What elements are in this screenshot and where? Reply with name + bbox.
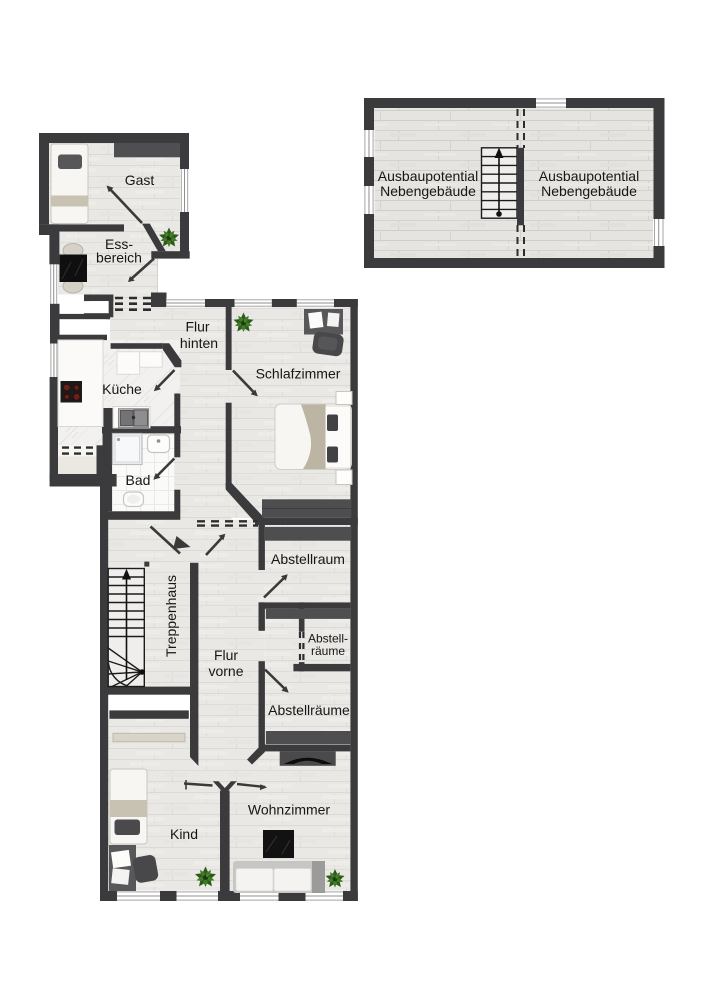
- svg-text:Flur: Flur: [214, 647, 238, 663]
- svg-text:Wohnzimmer: Wohnzimmer: [248, 802, 331, 818]
- svg-text:Treppenhaus: Treppenhaus: [163, 575, 179, 657]
- svg-text:räume: räume: [311, 644, 345, 658]
- svg-text:Küche: Küche: [102, 381, 142, 397]
- svg-text:Kind: Kind: [170, 826, 198, 842]
- svg-text:bereich: bereich: [96, 250, 142, 266]
- svg-text:Ausbaupotential: Ausbaupotential: [539, 168, 639, 184]
- svg-text:vorne: vorne: [208, 663, 243, 679]
- svg-text:Ausbaupotential: Ausbaupotential: [378, 168, 478, 184]
- svg-text:Abstellraum: Abstellraum: [271, 551, 345, 567]
- svg-text:Schlafzimmer: Schlafzimmer: [256, 366, 341, 382]
- svg-text:hinten: hinten: [180, 335, 218, 351]
- svg-text:Abstellräume: Abstellräume: [268, 702, 350, 718]
- svg-text:Nebengebäude: Nebengebäude: [380, 183, 476, 199]
- svg-text:Gast: Gast: [125, 172, 155, 188]
- svg-text:Flur: Flur: [185, 319, 209, 335]
- svg-text:Bad: Bad: [126, 472, 151, 488]
- svg-text:Nebengebäude: Nebengebäude: [541, 183, 637, 199]
